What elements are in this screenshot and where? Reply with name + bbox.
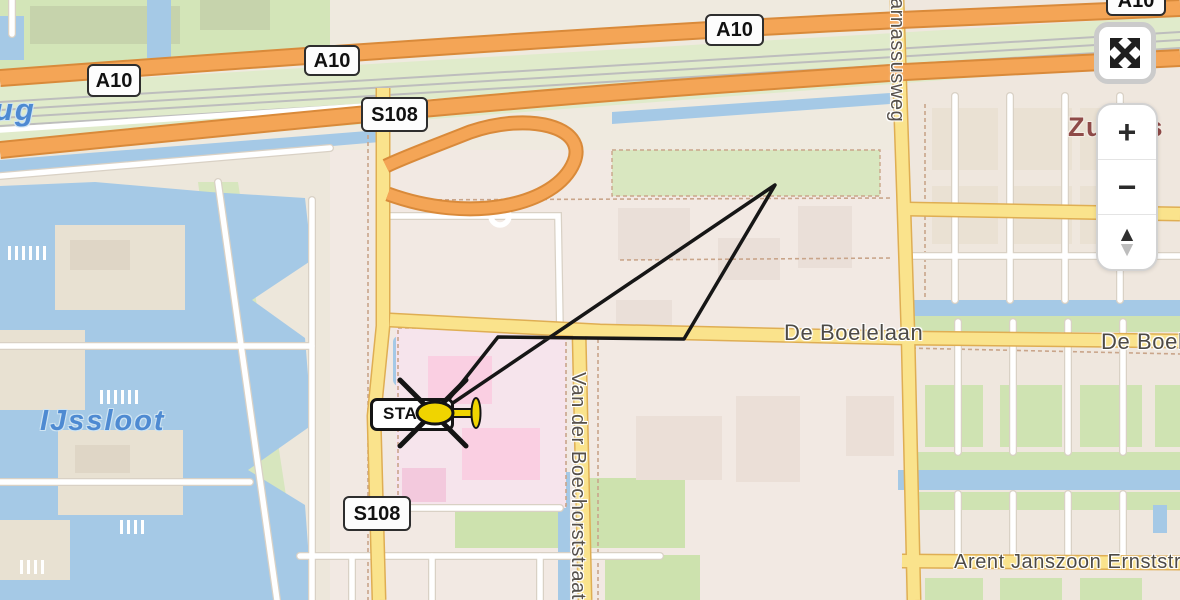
zoom-out-icon: −	[1118, 171, 1137, 203]
zoom-in-button[interactable]: +	[1098, 105, 1156, 160]
map-canvas[interactable]	[0, 0, 1180, 600]
zoom-out-button[interactable]: −	[1098, 160, 1156, 215]
expand-arrows-icon	[1105, 33, 1145, 73]
helicopter-icon	[400, 380, 481, 446]
fullscreen-button[interactable]	[1094, 22, 1156, 84]
pan-control[interactable]: ▲ ▼	[1098, 215, 1156, 269]
map-viewport[interactable]: A10A10A10A10S108S108De BoelelaanDe Boele…	[0, 0, 1180, 600]
zoom-in-icon: +	[1118, 116, 1137, 148]
map-zoom-control: + − ▲ ▼	[1096, 103, 1158, 271]
helicopter-marker[interactable]	[390, 374, 485, 454]
pan-down-icon: ▼	[1117, 242, 1138, 257]
